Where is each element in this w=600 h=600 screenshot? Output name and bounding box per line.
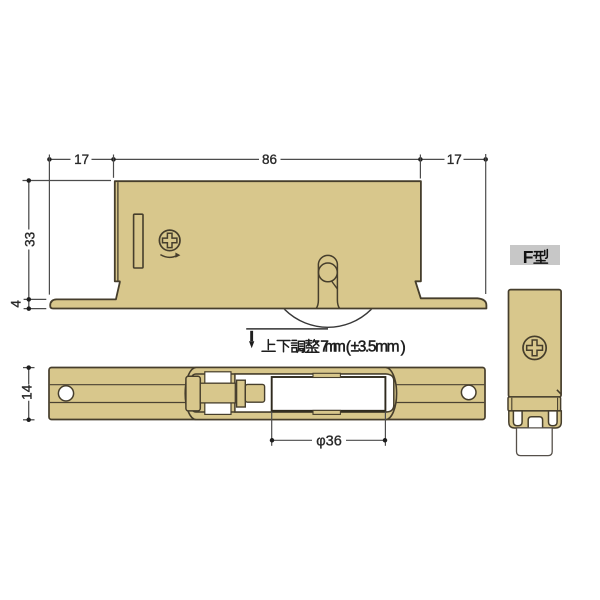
svg-text:17: 17 — [74, 152, 89, 167]
svg-text:86: 86 — [262, 152, 277, 167]
svg-text:±3.5mm: ±3.5mm — [351, 339, 400, 356]
svg-text:F: F — [523, 247, 534, 267]
svg-text:4: 4 — [9, 300, 24, 308]
svg-text:7mm: 7mm — [320, 339, 346, 356]
svg-text:φ36: φ36 — [316, 433, 342, 449]
svg-text:17: 17 — [447, 152, 462, 167]
svg-text:14: 14 — [19, 384, 34, 400]
svg-text:33: 33 — [22, 232, 37, 247]
svg-text:): ) — [401, 339, 406, 356]
